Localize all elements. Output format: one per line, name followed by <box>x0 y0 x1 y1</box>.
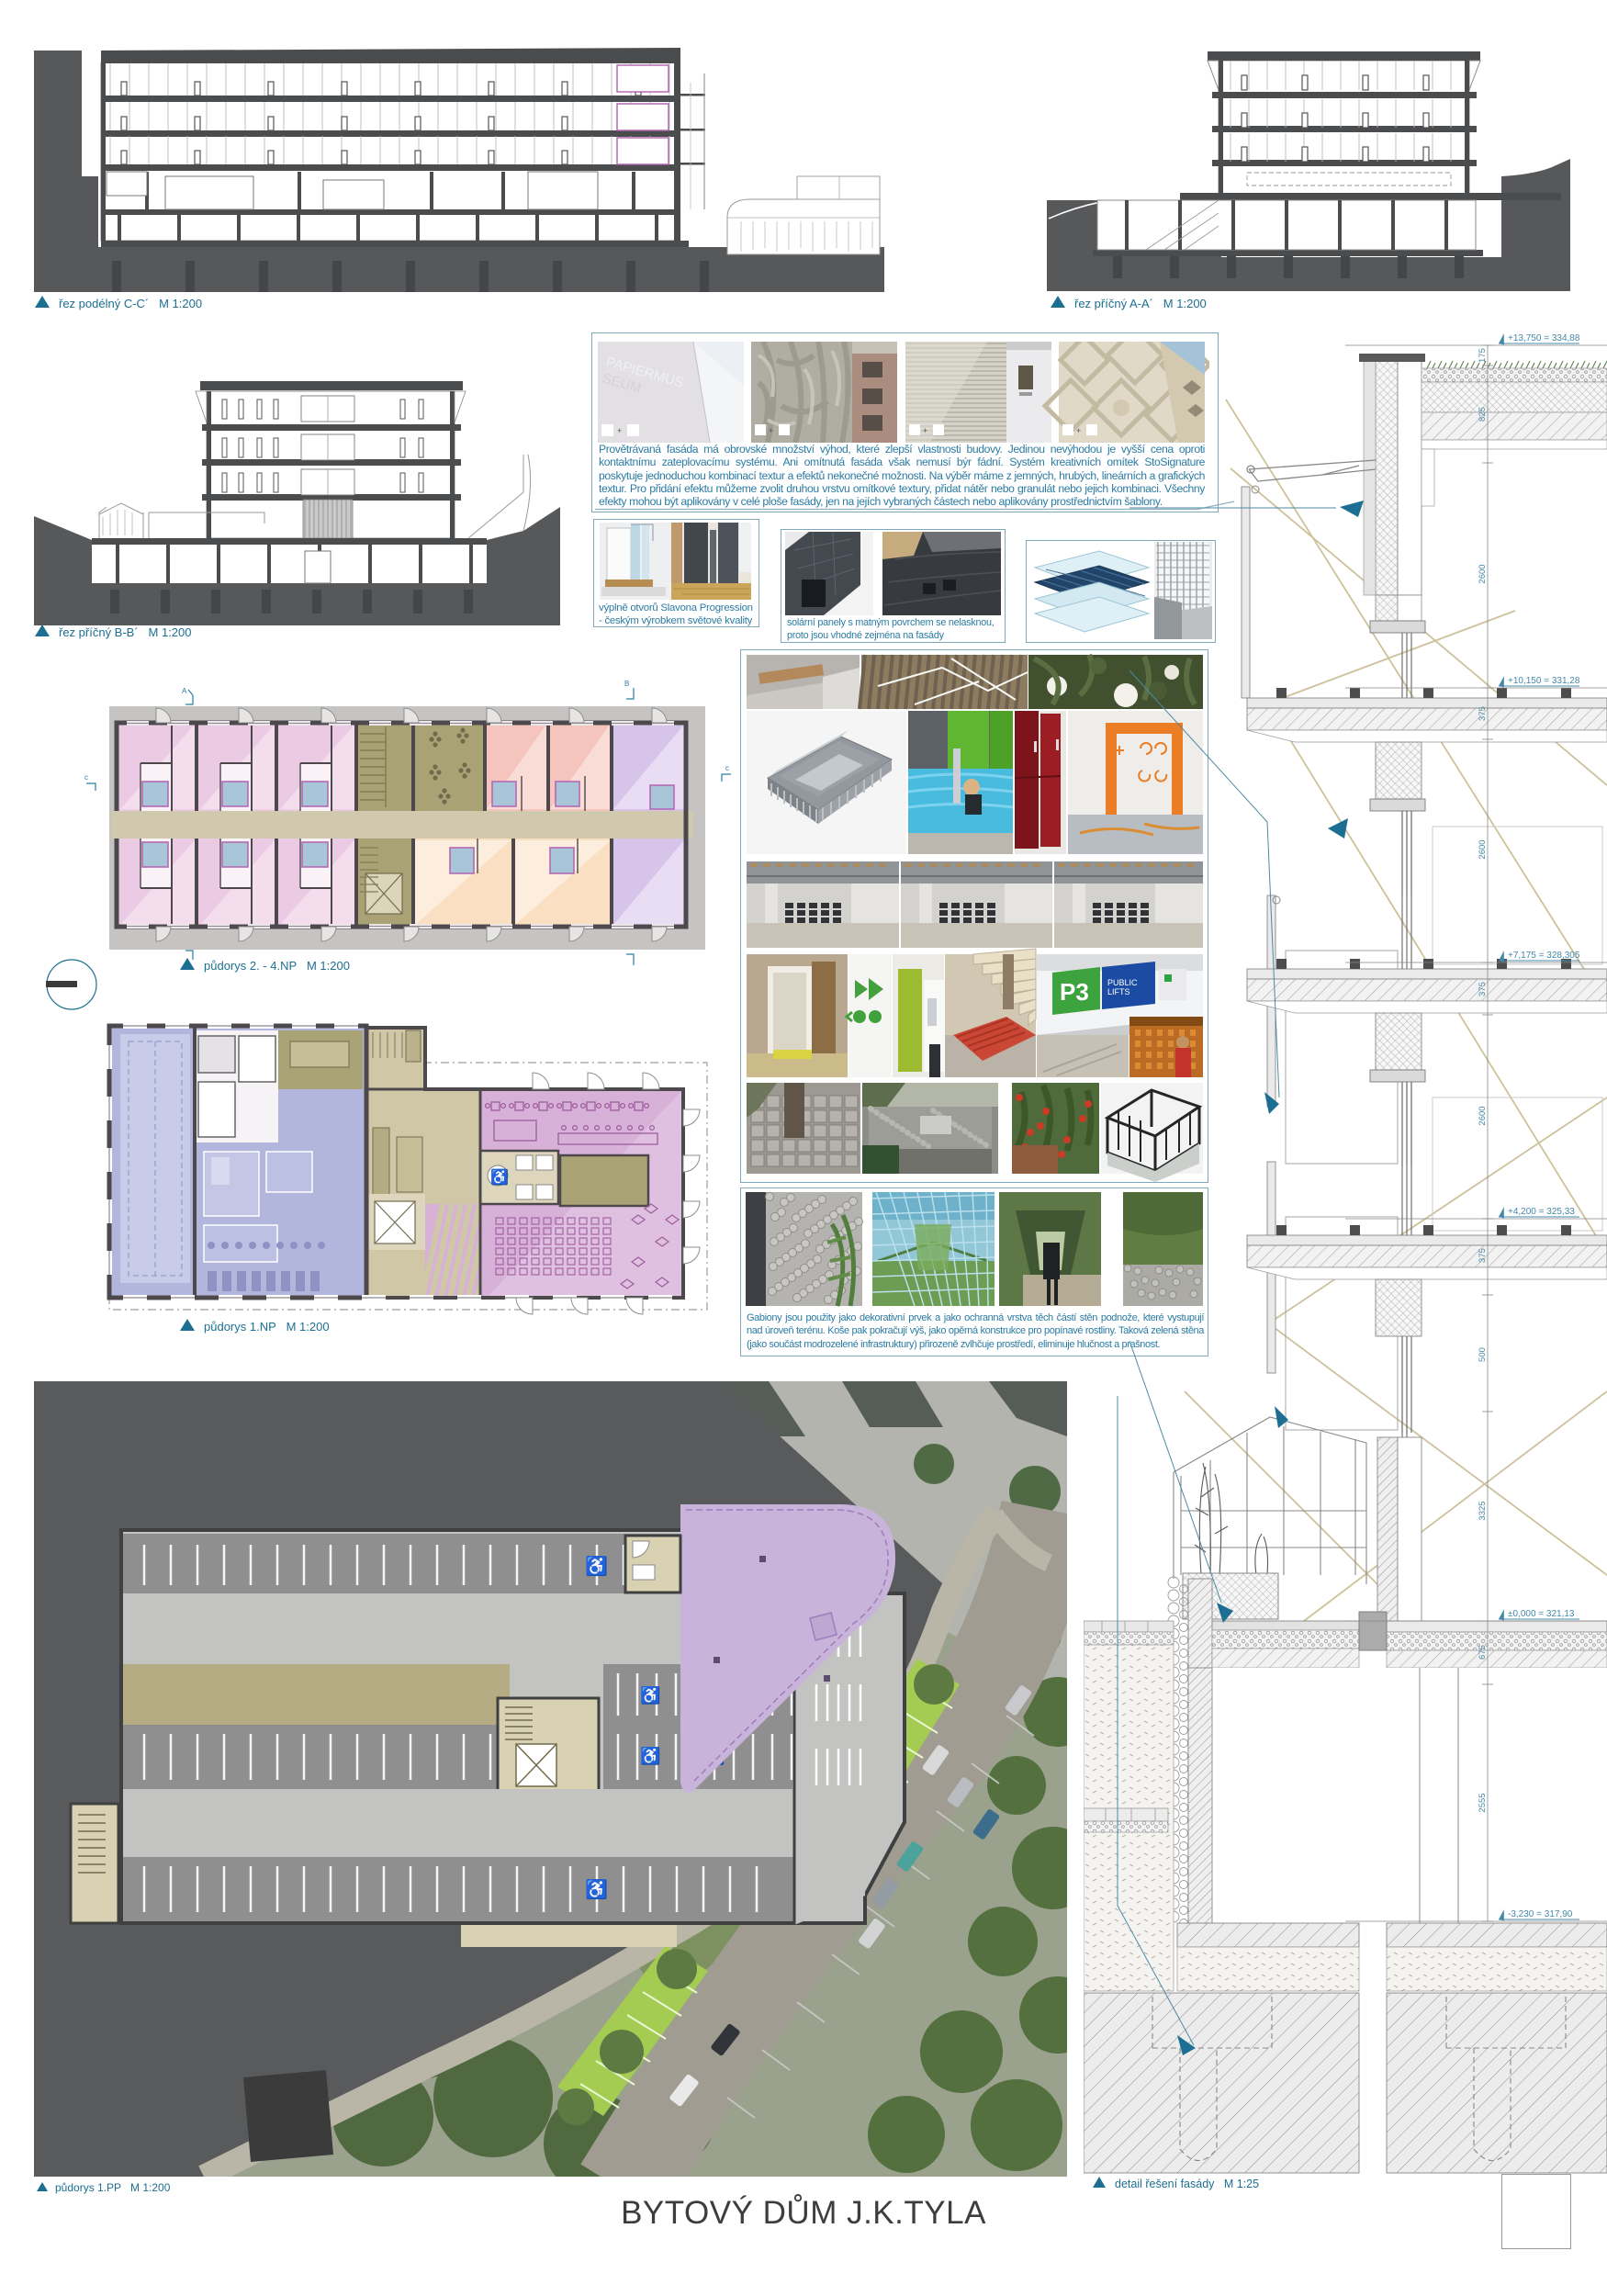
svg-text:+13,750 = 334,88: +13,750 = 334,88 <box>1508 333 1580 343</box>
svg-text:♿: ♿ <box>585 1878 608 1900</box>
svg-text:500: 500 <box>1478 1347 1488 1362</box>
svg-text:+7,175 = 328,305: +7,175 = 328,305 <box>1508 951 1580 961</box>
svg-text:+10,150 = 331,28: +10,150 = 331,28 <box>1508 676 1580 686</box>
svg-text:c: c <box>725 764 729 772</box>
svg-text:A: A <box>182 687 187 695</box>
svg-text:2600: 2600 <box>1478 839 1488 859</box>
svg-text:375: 375 <box>1478 1248 1488 1263</box>
svg-text:+4,200 = 325,33: +4,200 = 325,33 <box>1508 1207 1575 1217</box>
svg-text:675: 675 <box>1478 1645 1488 1660</box>
svg-text:3325: 3325 <box>1478 1501 1488 1520</box>
svg-text:825: 825 <box>1478 407 1488 422</box>
svg-text:+: + <box>769 426 773 435</box>
svg-text:c: c <box>84 773 88 782</box>
svg-text:+: + <box>923 426 927 435</box>
svg-text:±0,000 = 321,13: ±0,000 = 321,13 <box>1508 1609 1575 1619</box>
svg-text:2600: 2600 <box>1478 1106 1488 1125</box>
svg-text:375: 375 <box>1478 982 1488 996</box>
svg-text:2555: 2555 <box>1478 1793 1488 1812</box>
svg-text:♿: ♿ <box>490 1168 509 1186</box>
svg-text:♿: ♿ <box>585 1555 608 1577</box>
svg-text:B: B <box>624 680 629 688</box>
svg-text:375: 375 <box>1478 706 1488 721</box>
svg-text:♿: ♿ <box>640 1685 660 1705</box>
svg-text:2600: 2600 <box>1478 564 1488 583</box>
svg-text:+: + <box>617 426 622 435</box>
svg-text:-3,230 = 317,90: -3,230 = 317,90 <box>1508 1909 1573 1919</box>
svg-text:+: + <box>1076 426 1081 435</box>
svg-text:♿: ♿ <box>640 1746 660 1765</box>
svg-text:175: 175 <box>1478 348 1488 363</box>
